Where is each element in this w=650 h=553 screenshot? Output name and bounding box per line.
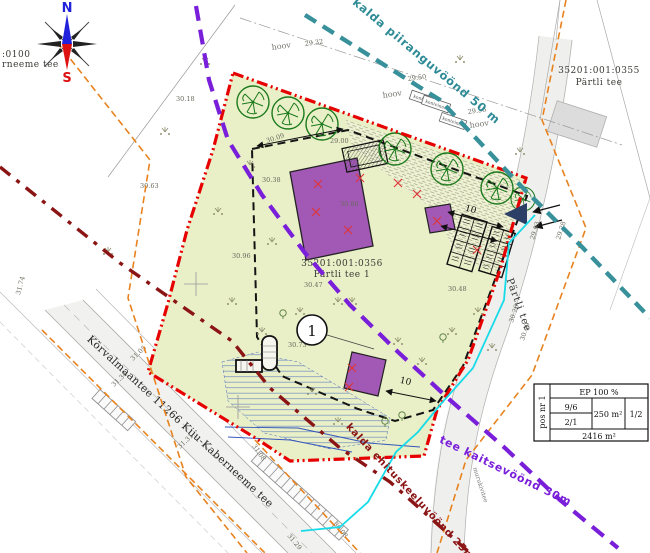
table-r2: 2/1: [565, 418, 578, 427]
svg-text:30.38: 30.38: [262, 176, 281, 184]
svg-text:30.63: 30.63: [140, 182, 159, 190]
pos-number: 1: [307, 322, 317, 340]
svg-text:29.00: 29.00: [330, 137, 349, 145]
table-storeys: 9/6: [565, 403, 578, 412]
site-plan-page: konteiner konteiner konteiner 10 10 :010…: [0, 0, 650, 553]
corner-note-line1: :0100: [2, 50, 30, 60]
compass-rose: N S: [37, 1, 97, 86]
table-plot-area: 2416 m²: [582, 432, 616, 441]
compass-north: N: [62, 1, 73, 16]
site-plan-canvas: konteiner konteiner konteiner 10 10 :010…: [0, 0, 650, 553]
table-ep: EP 100 %: [579, 388, 619, 397]
table-pos: pos nr 1: [538, 395, 547, 428]
table-building-area: 250 m²: [594, 410, 623, 419]
yard-label: hoov: [382, 88, 403, 100]
building-small-south: [344, 352, 386, 396]
svg-text:30.48: 30.48: [448, 285, 467, 293]
road-surface-note: murukivitee: [471, 466, 489, 503]
svg-text:30.47: 30.47: [304, 281, 323, 289]
corner-note-line2: rneeme tee: [2, 60, 59, 70]
svg-text:30.96: 30.96: [232, 252, 251, 260]
south-needle: [62, 44, 72, 70]
neighbor-name: Pärtli tee: [576, 78, 623, 88]
shore-limit-label: kalda piiranguvöönd 50 m: [350, 0, 503, 127]
compass-south: S: [62, 71, 71, 86]
yard-label: hoov: [271, 40, 292, 52]
svg-text:30.18: 30.18: [176, 95, 195, 103]
table-ratio: 1/2: [630, 410, 643, 419]
svg-text:29.32: 29.32: [304, 37, 324, 48]
svg-text:29.50: 29.50: [407, 72, 427, 83]
info-table: pos nr 1 EP 100 % 9/6 2/1 250 m² 1/2 241…: [534, 384, 648, 441]
north-needle: [62, 14, 72, 44]
neighbor-cadastral: 35201:001:0355: [558, 66, 640, 76]
svg-text:30.86: 30.86: [340, 200, 359, 208]
svg-text:31.74: 31.74: [14, 275, 27, 295]
